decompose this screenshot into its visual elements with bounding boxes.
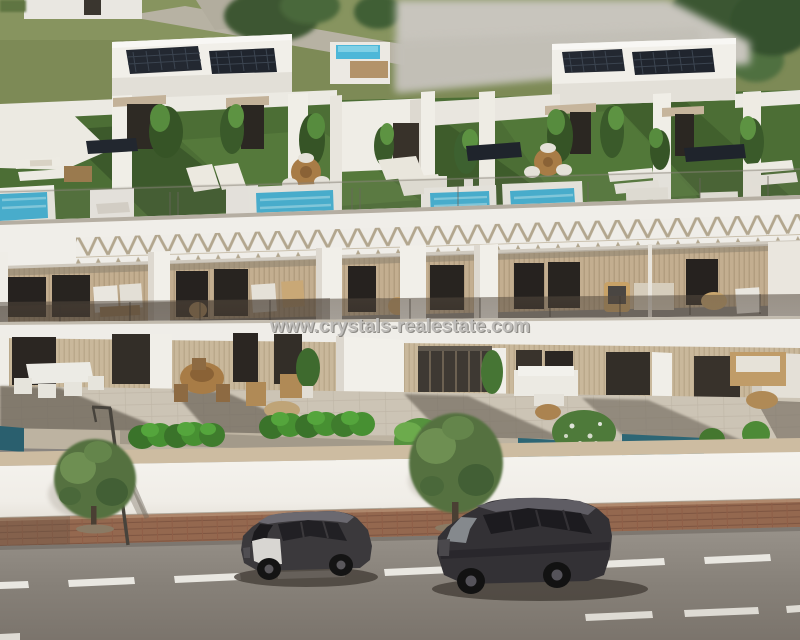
svg-text:www.crystals-realestate.com: www.crystals-realestate.com — [269, 316, 530, 337]
